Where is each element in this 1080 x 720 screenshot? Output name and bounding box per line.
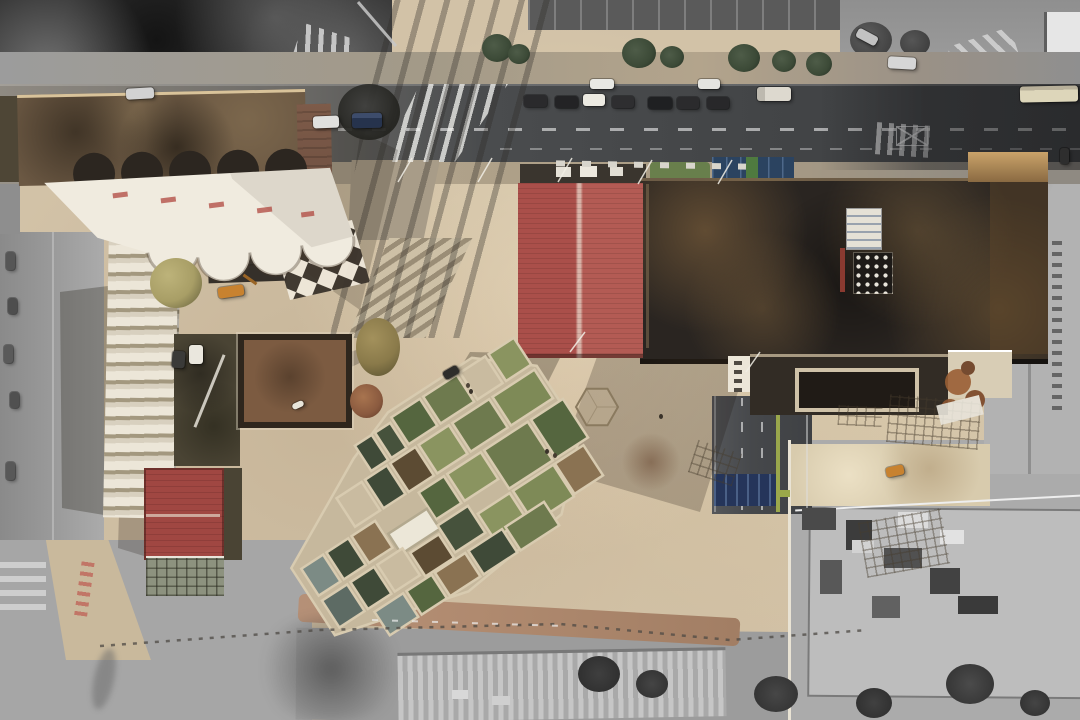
pedestrian — [659, 414, 663, 419]
street-tree — [508, 44, 530, 64]
gray-tree-bottom — [856, 688, 892, 718]
gray-tree-bottom — [754, 676, 798, 712]
rust-tree — [350, 384, 383, 418]
crane-and-poles — [358, 2, 760, 372]
white-truck — [313, 116, 339, 129]
blue-truck — [352, 113, 382, 129]
pedestrian — [469, 389, 473, 394]
hexagon-pavilion — [576, 389, 618, 425]
white-machine — [492, 696, 510, 705]
plaza-tree — [356, 318, 400, 376]
pedestrian — [553, 453, 557, 458]
parked-car-left-street — [10, 392, 19, 408]
gray-tree-bottom — [946, 664, 994, 704]
white-machine — [452, 690, 468, 699]
parked-car-left-street — [8, 298, 17, 314]
svg-scene — [0, 0, 1080, 720]
parked-car-left-street — [6, 252, 15, 270]
parked-car-dark — [524, 95, 547, 107]
boundary-hatch-line — [100, 624, 868, 646]
car-white-moving — [583, 94, 605, 106]
street-tree — [806, 52, 832, 76]
parked-truck-white — [757, 87, 791, 101]
gray-truck — [888, 56, 917, 69]
gray-tree-bottom — [578, 656, 620, 692]
parked-car-dark — [648, 97, 672, 109]
pedestrian — [545, 449, 549, 454]
white-truck-gray-zone — [126, 87, 155, 99]
parked-car-dark — [555, 96, 578, 108]
street-tree — [728, 44, 760, 72]
plaza-van-dark — [171, 351, 185, 369]
gray-tree-bottom — [1020, 690, 1050, 716]
street-tree — [482, 34, 512, 62]
street-tree — [660, 46, 684, 68]
parked-car-dark — [612, 96, 634, 108]
aerial-photo — [0, 0, 1080, 720]
parked-car-white — [698, 79, 720, 89]
plaza-car-white — [189, 345, 203, 364]
parked-car-left-street — [6, 462, 15, 480]
parked-car-dark — [707, 97, 729, 109]
pedestrian — [466, 383, 470, 388]
plaza-tree — [150, 258, 202, 308]
parked-car-right-road — [1060, 148, 1069, 164]
debris-pile — [936, 361, 985, 425]
parked-car-left-street — [4, 345, 13, 363]
city-bus — [1020, 85, 1078, 102]
parked-car-white — [590, 79, 614, 89]
parked-car-dark — [677, 97, 699, 109]
terraced-housing-cluster — [249, 328, 623, 665]
street-tree — [622, 38, 656, 68]
gray-tree-bottom — [636, 670, 668, 698]
street-tree — [772, 50, 796, 72]
